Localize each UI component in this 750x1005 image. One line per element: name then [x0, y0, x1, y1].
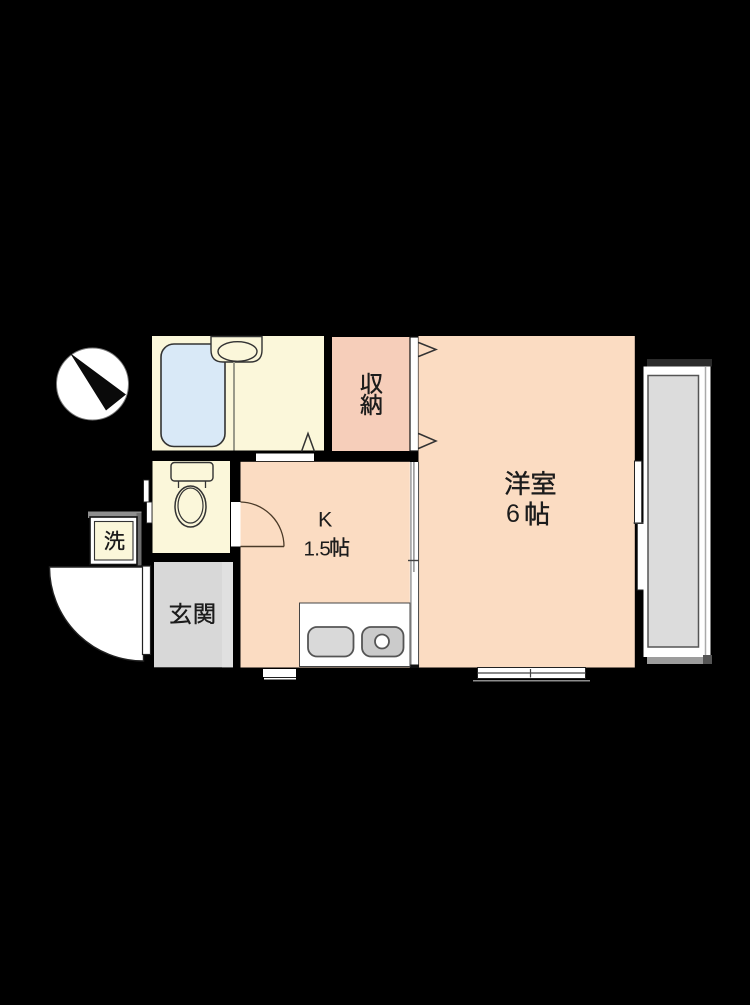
svg-text:K: K — [318, 508, 333, 532]
svg-text:6: 6 — [506, 500, 520, 528]
svg-text:1.5: 1.5 — [304, 538, 331, 561]
